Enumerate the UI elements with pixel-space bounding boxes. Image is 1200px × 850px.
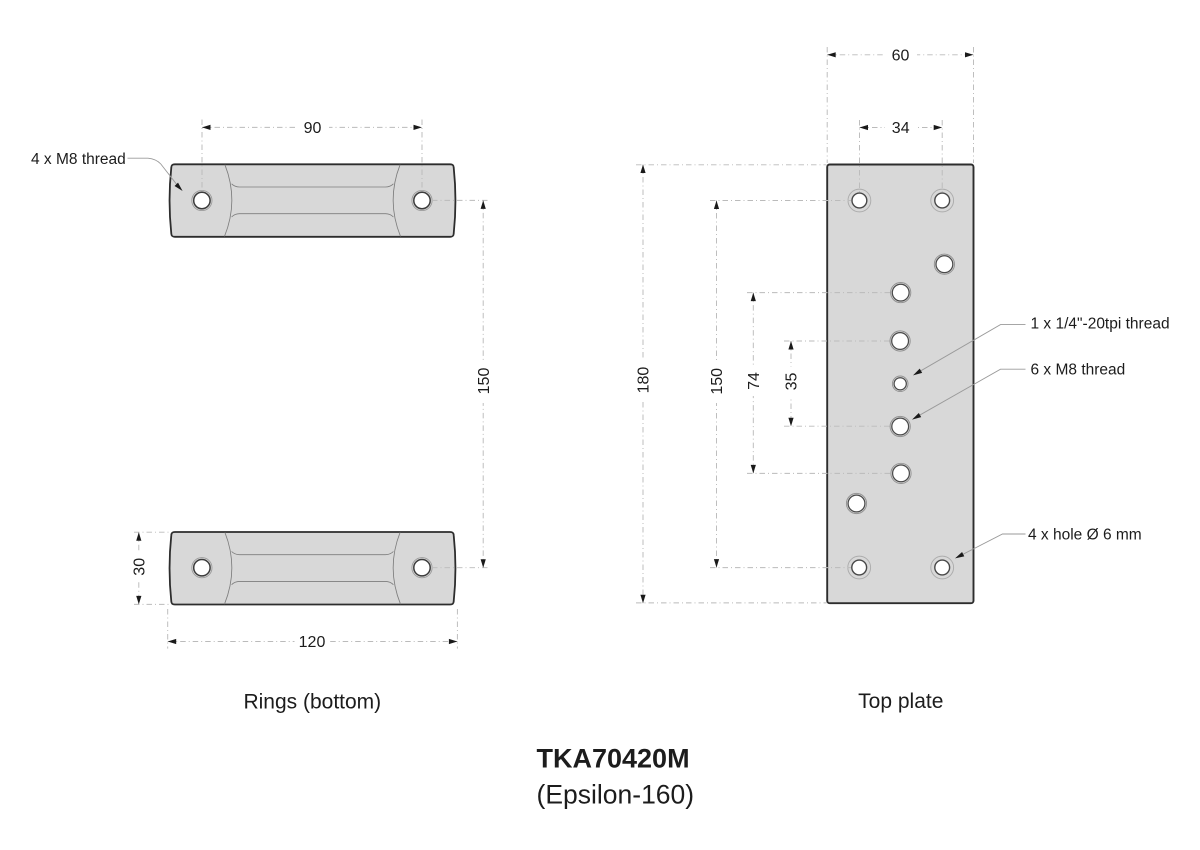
svg-text:30: 30 — [132, 558, 149, 576]
svg-text:TKA70420M: TKA70420M — [537, 744, 690, 774]
svg-text:74: 74 — [746, 372, 763, 390]
svg-text:Rings (bottom): Rings (bottom) — [243, 690, 381, 713]
svg-text:150: 150 — [476, 368, 493, 395]
svg-text:6 x M8 thread: 6 x M8 thread — [1031, 361, 1126, 378]
svg-text:35: 35 — [784, 373, 801, 391]
svg-text:4 x M8 thread: 4 x M8 thread — [31, 151, 126, 168]
svg-text:120: 120 — [299, 634, 326, 651]
svg-text:90: 90 — [304, 120, 322, 137]
svg-text:180: 180 — [636, 367, 653, 394]
svg-text:34: 34 — [892, 120, 910, 137]
svg-text:150: 150 — [709, 368, 726, 395]
svg-text:(Epsilon-160): (Epsilon-160) — [537, 780, 695, 810]
svg-text:4 x hole Ø 6 mm: 4 x hole Ø 6 mm — [1028, 526, 1142, 543]
svg-text:60: 60 — [892, 48, 910, 65]
svg-text:1 x 1/4"-20tpi thread: 1 x 1/4"-20tpi thread — [1031, 316, 1170, 333]
svg-text:Top plate: Top plate — [858, 690, 943, 713]
